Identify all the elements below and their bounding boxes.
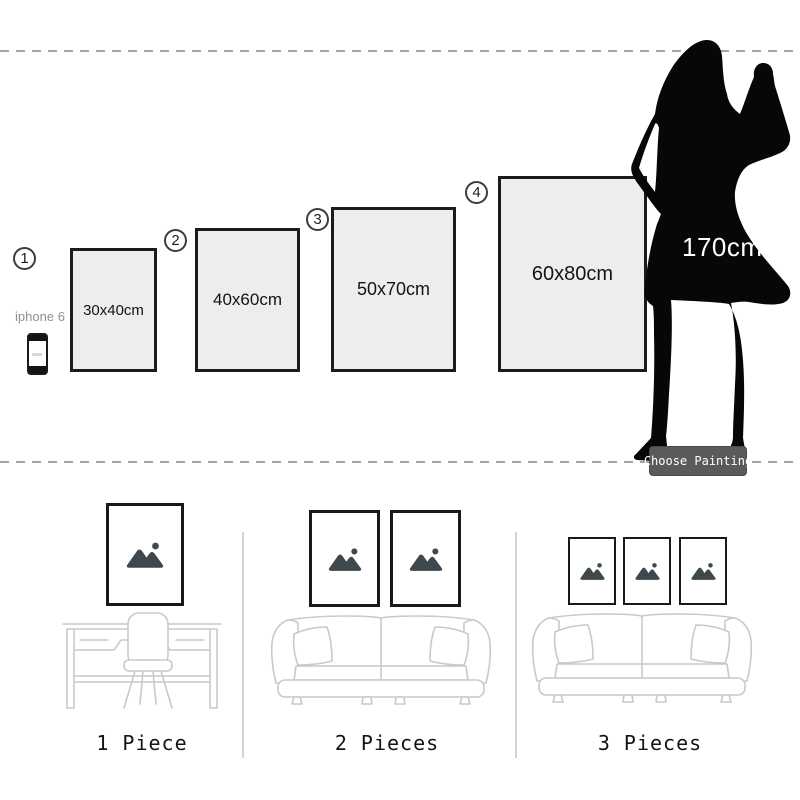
size-option-2-digit: 2	[171, 232, 179, 249]
mountain-sun-icon	[579, 562, 606, 580]
size-option-1-number: 1	[13, 247, 36, 270]
size-option-3-number: 3	[306, 208, 329, 231]
size-option-4-digit: 4	[472, 184, 480, 201]
size-option-4-number: 4	[465, 181, 488, 204]
size-option-1-digit: 1	[20, 250, 28, 267]
mountain-sun-icon	[408, 547, 444, 571]
size-frame-50x70: 50x70cm	[331, 207, 456, 372]
room2-label: 2 Pieces	[302, 731, 472, 755]
iphone-icon	[27, 333, 48, 375]
room3-wall-frame-1	[568, 537, 616, 605]
choose-painting-button[interactable]: Choose Painting	[649, 446, 747, 476]
room1-wall-frame	[106, 503, 184, 606]
iphone-screen	[29, 341, 46, 366]
size-frame-60x80: 60x80cm	[498, 176, 647, 372]
size-option-3-digit: 3	[313, 211, 321, 228]
size-option-2-number: 2	[164, 229, 187, 252]
room2-wall-frame-2	[390, 510, 461, 607]
size-frame-50x70-label: 50x70cm	[357, 279, 430, 300]
iphone-screen-mark	[32, 353, 42, 356]
mountain-sun-icon	[125, 541, 165, 568]
room-divider-2	[515, 532, 517, 758]
mountain-sun-icon	[690, 562, 717, 580]
iphone-bottom-bezel	[29, 366, 46, 373]
sofa-illustration	[527, 608, 757, 704]
room3-wall-frame-3	[679, 537, 727, 605]
size-frame-30x40: 30x40cm	[70, 248, 157, 372]
size-frame-40x60: 40x60cm	[195, 228, 300, 372]
room3-wall-frame-2	[623, 537, 671, 605]
room2-wall-frame-1	[309, 510, 380, 607]
size-frame-60x80-label: 60x80cm	[532, 263, 613, 286]
size-frame-40x60-label: 40x60cm	[213, 290, 282, 310]
iphone-label: iphone 6	[8, 309, 72, 324]
model-height-label: 170cm	[682, 232, 762, 263]
sofa-illustration	[266, 610, 496, 706]
size-frame-30x40-label: 30x40cm	[83, 302, 144, 319]
desk-chair-illustration	[58, 608, 226, 710]
mountain-sun-icon	[327, 547, 363, 571]
mountain-sun-icon	[634, 562, 661, 580]
room1-label: 1 Piece	[57, 731, 227, 755]
room-divider-1	[242, 532, 244, 758]
size-guide-graphic: 1 2 3 4 30x40cm 40x60cm 50x70cm 60x80cm …	[0, 0, 800, 800]
room3-label: 3 Pieces	[565, 731, 735, 755]
